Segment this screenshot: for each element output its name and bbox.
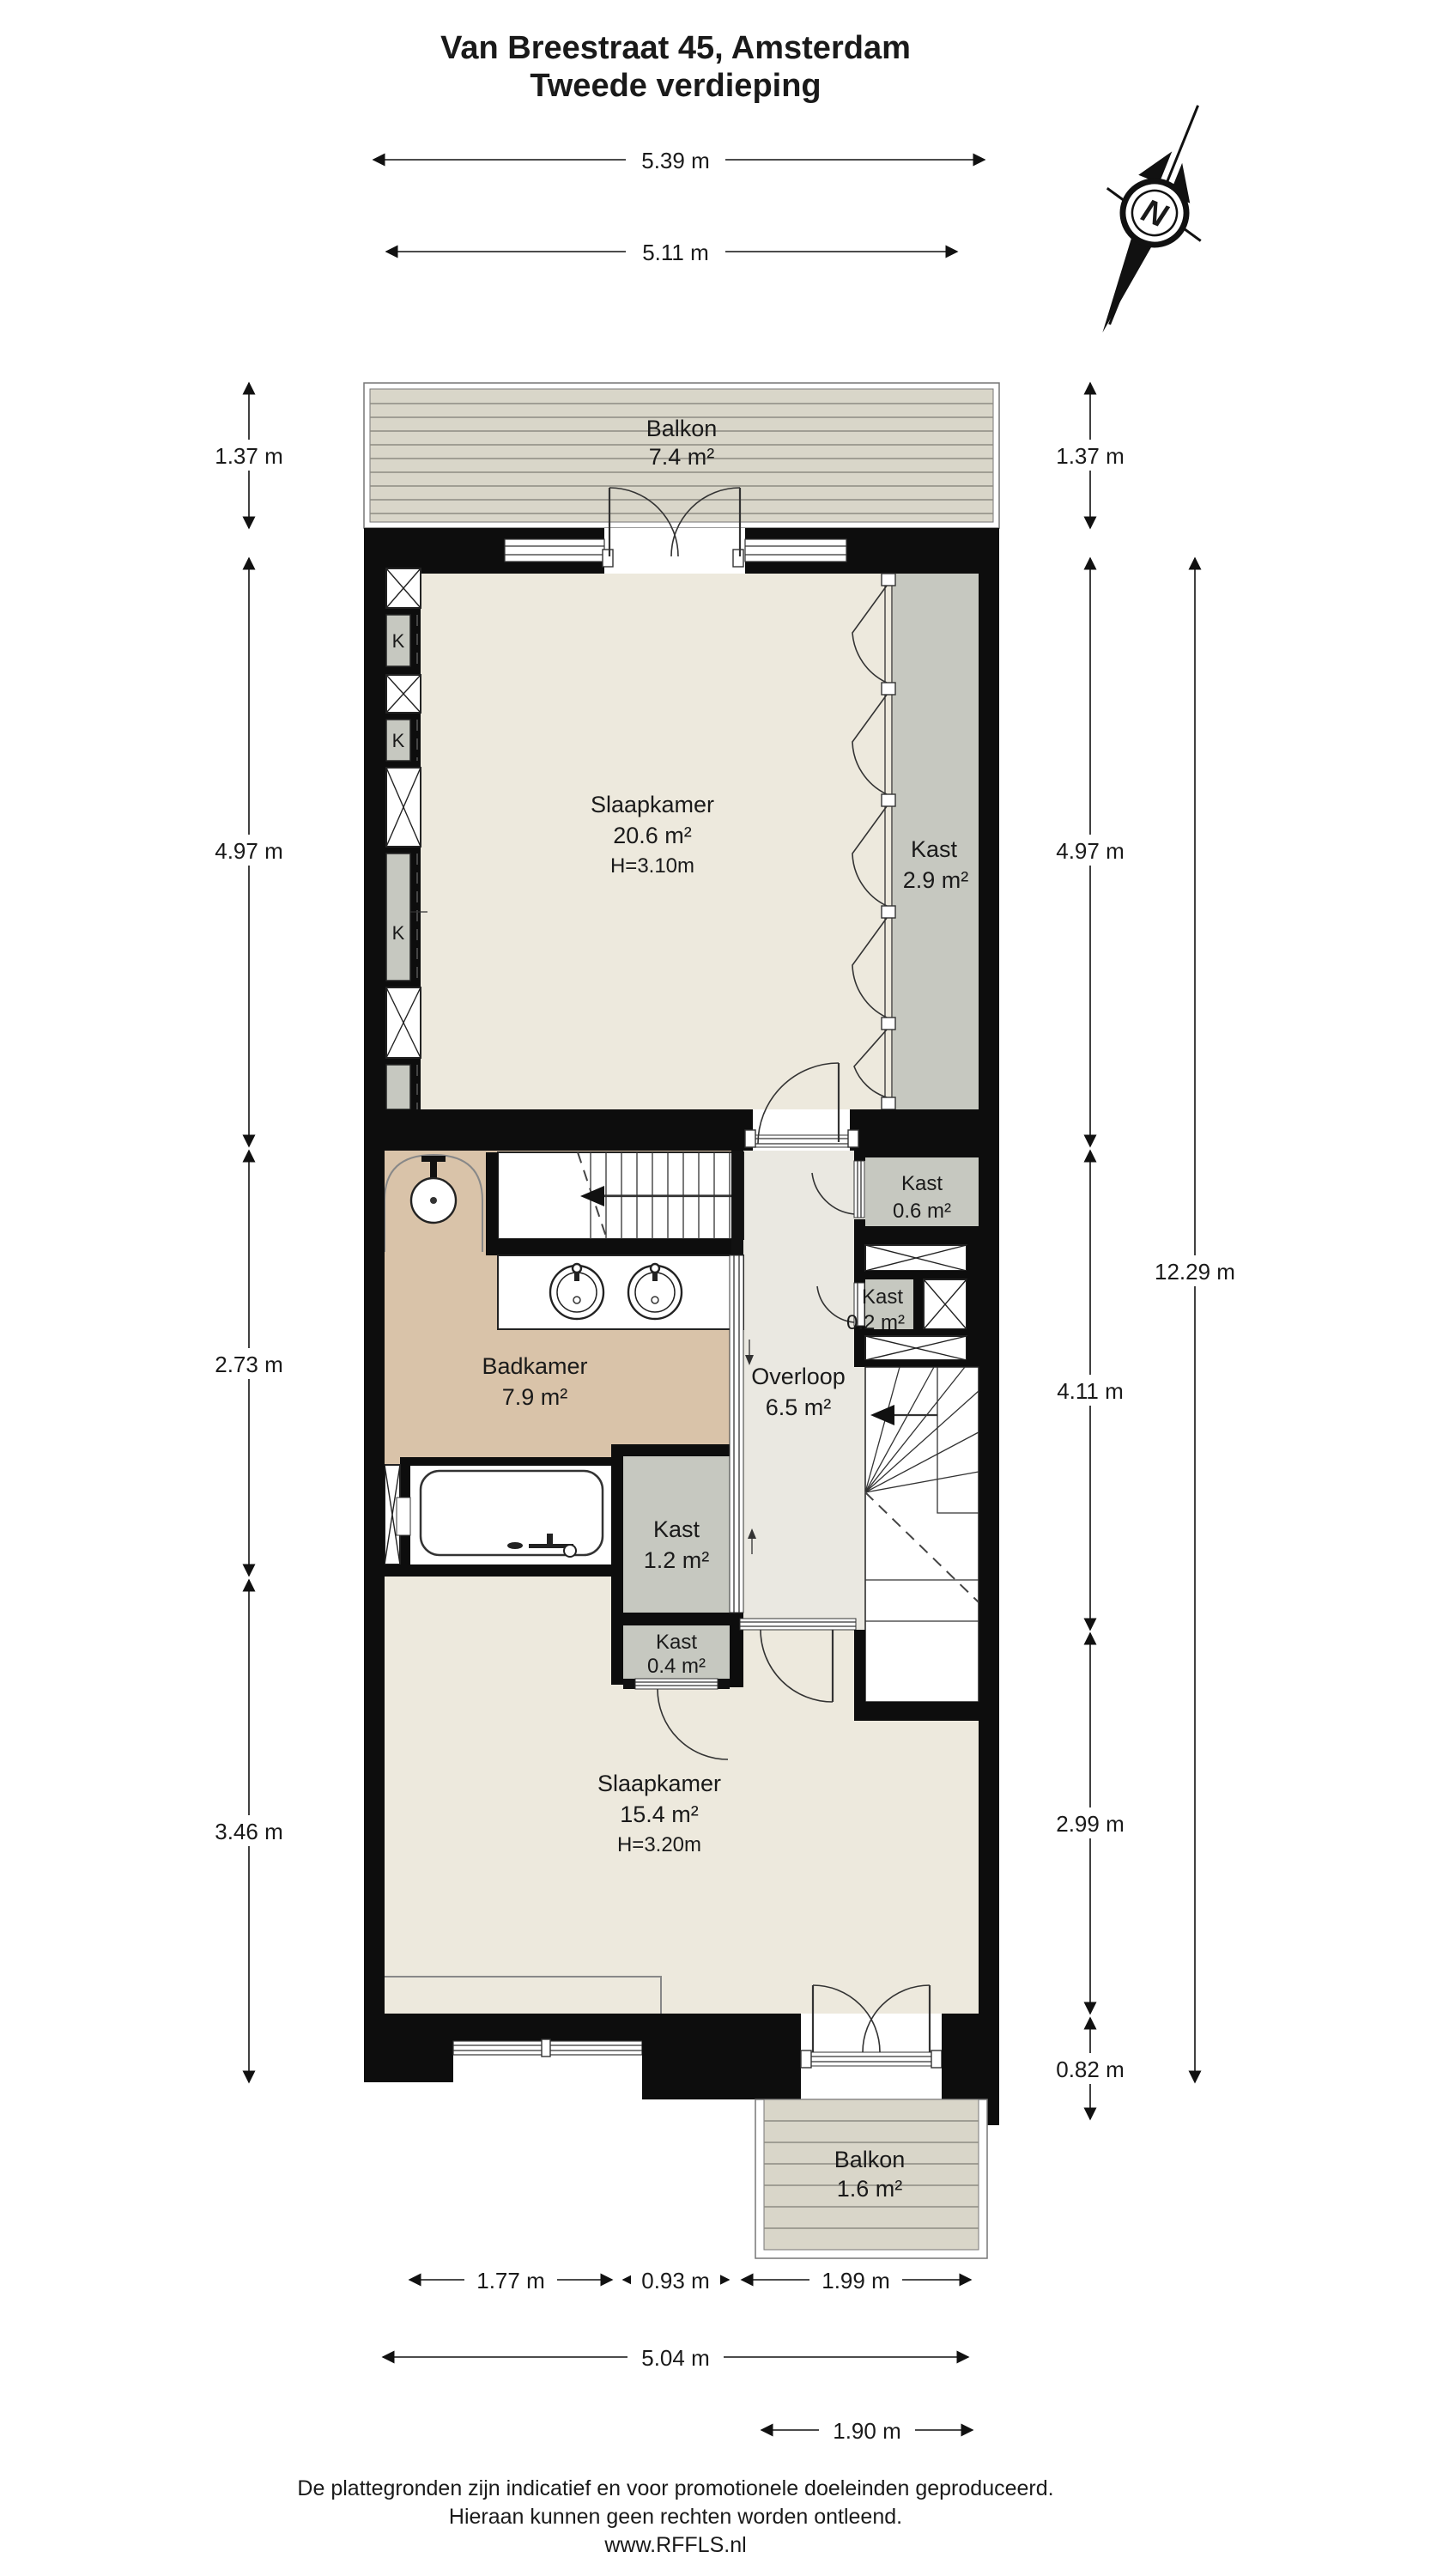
room-area: 15.4 m² [620, 1801, 699, 1827]
title-line-2: Tweede verdieping [530, 68, 821, 104]
room-ceiling-height: H=3.10m [610, 854, 694, 878]
dimension-left-2: 4.97 m [204, 558, 294, 1146]
wall-right-exterior [979, 528, 999, 2082]
dim-label: 5.39 m [641, 148, 710, 173]
bathtub-icon [421, 1471, 603, 1555]
room-area: 2.9 m² [903, 867, 969, 893]
room-area: 1.6 m² [837, 2176, 903, 2202]
sink-right-faucet [651, 1264, 659, 1273]
compass-tick-west [1106, 188, 1127, 201]
dim-label: 1.37 m [1056, 443, 1125, 469]
dim-label: 5.04 m [641, 2345, 710, 2371]
vanity-counter [498, 1255, 743, 1329]
room-name: Balkon [834, 2147, 906, 2172]
dimension-right-4: 2.99 m [1046, 1633, 1135, 2014]
room-name: Slaapkamer [591, 792, 714, 817]
room-area: 1.2 m² [644, 1547, 710, 1573]
north-compass-icon: N [1057, 86, 1247, 355]
balcony-bottom: Balkon 1.6 m² [755, 2099, 987, 2258]
footer-line-1: De plattegronden zijn indicatief en voor… [297, 2476, 1053, 2500]
dim-label: 1.77 m [476, 2268, 545, 2293]
shower-head-center [430, 1197, 437, 1204]
window-top-left [505, 539, 604, 562]
dimension-bottom-1: 1.77 m [409, 2264, 612, 2295]
dim-label: 2.73 m [215, 1352, 283, 1377]
wall-under-stairs-lower [854, 1702, 999, 1721]
dimension-right-total: 12.29 m [1140, 558, 1250, 2082]
room-name: Kast [862, 1285, 903, 1309]
room-name: Kast [901, 1172, 943, 1195]
dimension-right-1: 1.37 m [1046, 383, 1135, 528]
room-name: Badkamer [482, 1353, 587, 1379]
dimension-right-5: 0.82 m [1046, 2018, 1135, 2119]
dimension-top-outer: 5.39 m [373, 144, 985, 175]
room-area: 0.6 m² [893, 1200, 951, 1223]
room-area: 7.4 m² [649, 444, 715, 470]
window-top-right [745, 539, 846, 562]
room-area: 20.6 m² [613, 823, 692, 848]
dimension-top-inner: 5.11 m [386, 236, 957, 267]
footer-line-2: Hieraan kunnen geen rechten worden ontle… [449, 2505, 902, 2529]
wall-under-stairs-upper [486, 1239, 743, 1255]
dim-label: 4.97 m [215, 838, 283, 864]
dimension-right-3: 4.11 m [1046, 1151, 1135, 1630]
dim-label: 0.82 m [1056, 2057, 1125, 2082]
compass-feather-left [1138, 143, 1172, 184]
room-area: 0.4 m² [647, 1655, 706, 1678]
bathtub-zone [385, 1457, 611, 1577]
dim-label: 1.37 m [215, 443, 283, 469]
title-line-1: Van Breestraat 45, Amsterdam [440, 30, 911, 66]
room-name: Kast [653, 1516, 700, 1542]
footer-website: www.RFFLS.nl [603, 2533, 746, 2557]
dimension-left-1: 1.37 m [204, 383, 294, 528]
vanity-double-sink [498, 1255, 743, 1329]
footer-disclaimer: De plattegronden zijn indicatief en voor… [297, 2476, 1053, 2557]
dim-label: 0.93 m [641, 2268, 710, 2293]
page-title: Van Breestraat 45, Amsterdam Tweede verd… [440, 30, 911, 104]
room-overloop-floor [743, 1151, 865, 1630]
dimension-bottom-inner: 5.04 m [383, 2342, 968, 2372]
shaft-box-wide-1 [865, 1245, 979, 1271]
closet-k-label: K [392, 922, 405, 944]
dim-label: 2.99 m [1056, 1811, 1125, 1837]
wall-left-lower [364, 1151, 385, 2082]
dim-label: 5.11 m [642, 240, 709, 265]
glazed-partition-overloop [730, 1151, 743, 1613]
room-area: 7.9 m² [502, 1384, 568, 1410]
room-area: 6.5 m² [766, 1394, 832, 1420]
dim-label: 1.99 m [822, 2268, 890, 2293]
dimension-left-4: 3.46 m [204, 1580, 294, 2082]
balcony-top: Balkon 7.4 m² [364, 383, 999, 528]
sink-left-faucet [573, 1264, 581, 1273]
dim-label: 1.90 m [833, 2418, 901, 2444]
dimension-bottom-outer: 1.90 m [761, 2415, 973, 2445]
dimension-bottom-3: 1.99 m [742, 2264, 971, 2295]
room-name: Kast [656, 1631, 697, 1654]
room-name: Slaapkamer [597, 1771, 721, 1796]
dimension-left-3: 2.73 m [204, 1151, 294, 1576]
shaft-box-wide-2 [865, 1336, 979, 1360]
dim-label: 3.46 m [215, 1819, 283, 1844]
compass-tick-east [1181, 228, 1203, 241]
room-name: Balkon [646, 416, 718, 441]
window-bottom [453, 2039, 642, 2057]
staircase-lower [865, 1367, 979, 1702]
dim-label: 4.11 m [1057, 1378, 1124, 1404]
dimension-right-2: 4.97 m [1046, 558, 1135, 1146]
closet-k-label: K [392, 630, 405, 652]
balcony-deck [764, 2099, 979, 2250]
closet-k-label: K [392, 730, 405, 751]
dim-label: 4.97 m [1056, 838, 1125, 864]
room-name: Kast [911, 836, 958, 862]
room-name: Overloop [751, 1364, 846, 1389]
floor-plan-canvas: Van Breestraat 45, Amsterdam Tweede verd… [0, 0, 1449, 2576]
floorplan-page: Van Breestraat 45, Amsterdam Tweede verd… [0, 0, 1449, 2576]
dim-label: 12.29 m [1155, 1259, 1235, 1285]
staircase-upper [498, 1152, 743, 1239]
room-ceiling-height: H=3.20m [617, 1833, 701, 1856]
dimension-bottom-2: 0.93 m [623, 2264, 729, 2295]
